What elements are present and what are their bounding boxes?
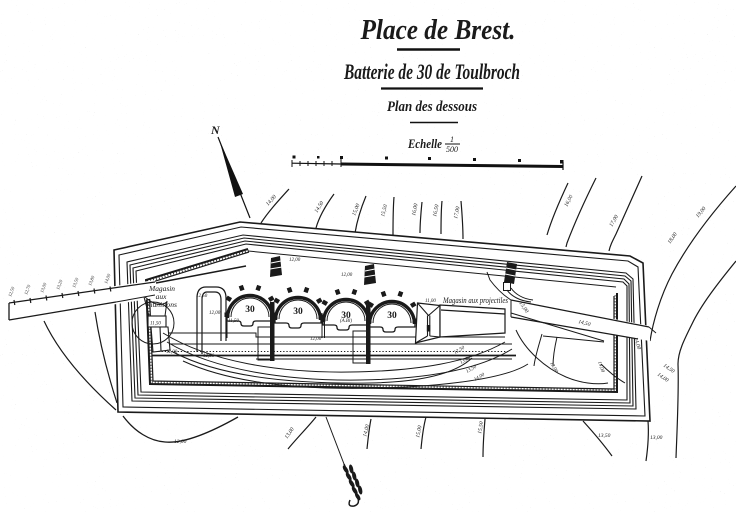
svg-text:30: 30	[387, 311, 397, 321]
svg-text:12,00: 12,00	[209, 311, 221, 316]
svg-text:12,00: 12,00	[289, 258, 301, 263]
svg-text:11,50: 11,50	[228, 319, 239, 324]
svg-text:500: 500	[446, 145, 458, 154]
svg-text:13,00: 13,00	[650, 435, 663, 441]
svg-text:(A.Bl): (A.Bl)	[340, 319, 352, 324]
svg-text:12,00: 12,00	[166, 350, 178, 355]
svg-text:30: 30	[293, 307, 303, 317]
svg-text:30: 30	[245, 305, 255, 315]
svg-text:12,00: 12,00	[310, 337, 322, 342]
svg-text:1: 1	[450, 135, 454, 144]
svg-text:12,50: 12,50	[196, 294, 208, 299]
svg-text:13,50: 13,50	[598, 433, 611, 439]
svg-text:12,00: 12,00	[174, 439, 187, 445]
svg-text:12,00: 12,00	[341, 273, 353, 278]
svg-text:N: N	[210, 123, 221, 137]
svg-text:11,50: 11,50	[150, 322, 161, 327]
svg-text:Batterie de 30 de Toulbroch: Batterie de 30 de Toulbroch	[343, 59, 520, 84]
svg-text:Echelle: Echelle	[407, 136, 442, 151]
svg-text:Magasin aux projectiles: Magasin aux projectiles	[442, 296, 508, 305]
svg-text:Place de Brest.: Place de Brest.	[360, 15, 516, 46]
svg-text:Plan des dessous: Plan des dessous	[387, 99, 477, 115]
svg-text:11,00: 11,00	[425, 299, 436, 304]
